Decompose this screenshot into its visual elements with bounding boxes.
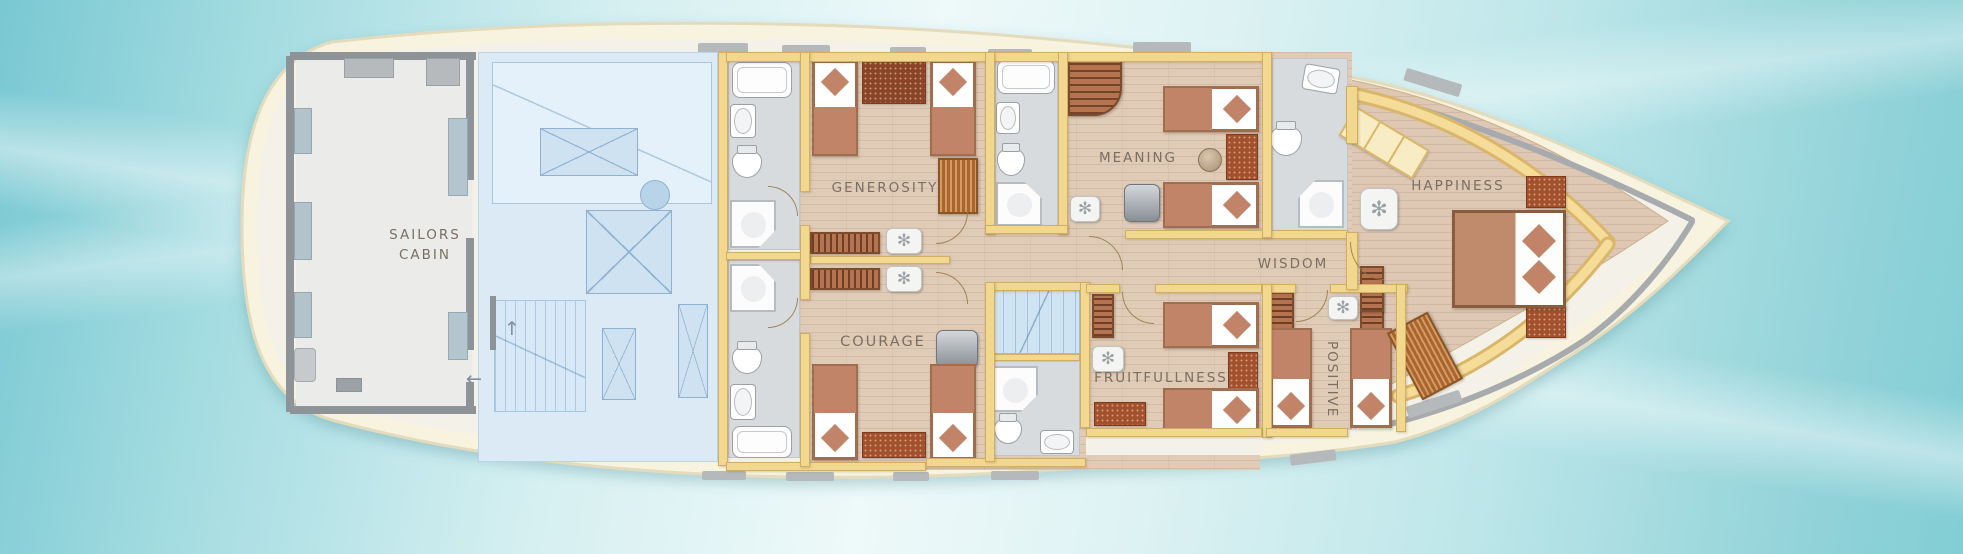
corridor-label-wisdom: WISDOM (1250, 256, 1336, 272)
bed (1350, 328, 1392, 428)
bed-pillow (1522, 224, 1556, 258)
rug (1226, 134, 1258, 180)
stairwell-stern (494, 300, 586, 412)
engine-equipment-box (678, 304, 708, 398)
stairs-exit-arrow: ← (466, 370, 482, 389)
bed (812, 364, 858, 460)
bed-pillow (1277, 392, 1305, 420)
radiator (810, 268, 880, 290)
wall (290, 406, 476, 414)
room-label-happiness: HAPPINESS (1398, 178, 1518, 194)
bed-blanket (932, 366, 974, 413)
room-label-generosity: GENEROSITY (820, 180, 950, 196)
bed-pillow (1357, 392, 1385, 420)
rug (862, 432, 926, 458)
fan-unit-icon: ✻ (1360, 188, 1398, 230)
room-label-courage: COURAGE (818, 334, 948, 350)
porthole-window (786, 472, 834, 481)
sailors-cabin-label-line2: CABIN (360, 246, 490, 266)
stairs-up-arrow: ↑ (504, 320, 520, 339)
bed (930, 364, 976, 460)
bed-pillow (939, 68, 967, 96)
wall (1086, 284, 1120, 293)
engine-equipment-box (602, 328, 636, 400)
wall (800, 333, 810, 467)
wall (1396, 284, 1406, 432)
locker (426, 58, 460, 86)
wall (1262, 284, 1272, 438)
bed-blanket (1165, 184, 1212, 226)
bed (1163, 388, 1259, 432)
engine-hatch-circle (640, 180, 670, 210)
room-label-fruitfullness: FRUITFULLNESS (1090, 370, 1232, 386)
plant-pot (1198, 148, 1222, 172)
bed-pillow (1522, 260, 1556, 294)
wall (985, 282, 1090, 291)
radiator (1092, 294, 1114, 338)
fan-unit-icon: ✻ (1092, 346, 1124, 372)
wall (810, 256, 950, 264)
deck-area (1086, 437, 1262, 455)
locker (344, 58, 394, 78)
radiator (810, 232, 880, 254)
radiator (1270, 292, 1294, 332)
sink (730, 104, 756, 138)
double-bed (1452, 210, 1566, 308)
locker (336, 378, 362, 392)
rug (1228, 352, 1258, 390)
bed (1270, 328, 1312, 428)
wall (1155, 284, 1262, 293)
wall (1262, 52, 1272, 238)
porthole-window (991, 471, 1039, 480)
wall (1125, 230, 1348, 239)
wall (1266, 428, 1348, 437)
bed-pillow (821, 424, 849, 452)
porthole-window (702, 471, 746, 480)
bed-blanket (1165, 390, 1212, 430)
porthole-window (893, 472, 929, 481)
wall (800, 52, 810, 192)
cabinet (862, 60, 926, 104)
berth-panel (294, 292, 312, 338)
bathtub (732, 426, 792, 458)
wardrobe-closet (1068, 56, 1122, 116)
rug (1526, 176, 1566, 208)
wall (1080, 282, 1090, 428)
wall (1086, 428, 1262, 437)
yacht-deck-plan: SAILORS CABIN ↑ ← GENEROSITY ✻ ✻ COURAGE (0, 0, 1963, 554)
bed-pillow (939, 424, 967, 452)
rug (1526, 306, 1566, 338)
cabin-door-panel (448, 118, 468, 196)
berth-panel (294, 202, 312, 260)
locker (294, 348, 316, 382)
wall (1346, 86, 1358, 144)
bed-pillow (1223, 396, 1251, 424)
stairwell-main (990, 290, 1080, 354)
bed-pillow (821, 68, 849, 96)
berth-panel (294, 108, 312, 154)
bed-pillow (1223, 191, 1251, 219)
bed (1163, 302, 1259, 348)
bed-pillow (1223, 311, 1251, 339)
wall (990, 354, 1080, 361)
bed-blanket (1165, 304, 1212, 346)
wall (726, 462, 926, 471)
bathtub (997, 60, 1055, 94)
wall (1058, 52, 1068, 235)
bed-blanket (932, 107, 974, 154)
bed-blanket (1165, 88, 1212, 130)
cabin-door-panel (448, 312, 468, 360)
bed-blanket (814, 366, 856, 413)
side-table (1124, 184, 1160, 222)
wall (985, 52, 995, 235)
bed (812, 60, 858, 156)
bed-blanket (1272, 330, 1310, 379)
room-label-meaning: MEANING (1090, 150, 1186, 166)
wall (490, 296, 496, 350)
bed-blanket (1352, 330, 1390, 379)
wall (286, 56, 294, 412)
sink (730, 384, 756, 420)
bed (930, 60, 976, 156)
bed (1163, 86, 1259, 132)
room-label-sailors-cabin: SAILORS CABIN (360, 226, 490, 265)
sink (1040, 430, 1074, 454)
sailors-cabin-label-line1: SAILORS (360, 226, 490, 246)
room-label-positive: POSITIVE (1314, 330, 1340, 430)
bathtub (732, 62, 792, 98)
bed-blanket (814, 107, 856, 154)
rug (1094, 402, 1146, 426)
bed-pillow (1223, 95, 1251, 123)
wall (726, 252, 810, 260)
wall (800, 225, 810, 300)
fan-unit-icon: ✻ (886, 228, 922, 254)
bed (1163, 182, 1259, 228)
wall (926, 458, 1086, 467)
engine-equipment-box (540, 128, 638, 176)
wall (985, 282, 995, 462)
fan-unit-icon: ✻ (1328, 296, 1358, 320)
engine-equipment-box (586, 210, 672, 294)
fan-unit-icon: ✻ (886, 266, 922, 292)
fan-unit-icon: ✻ (1070, 196, 1100, 222)
sink (996, 102, 1020, 134)
wall (985, 225, 1068, 234)
